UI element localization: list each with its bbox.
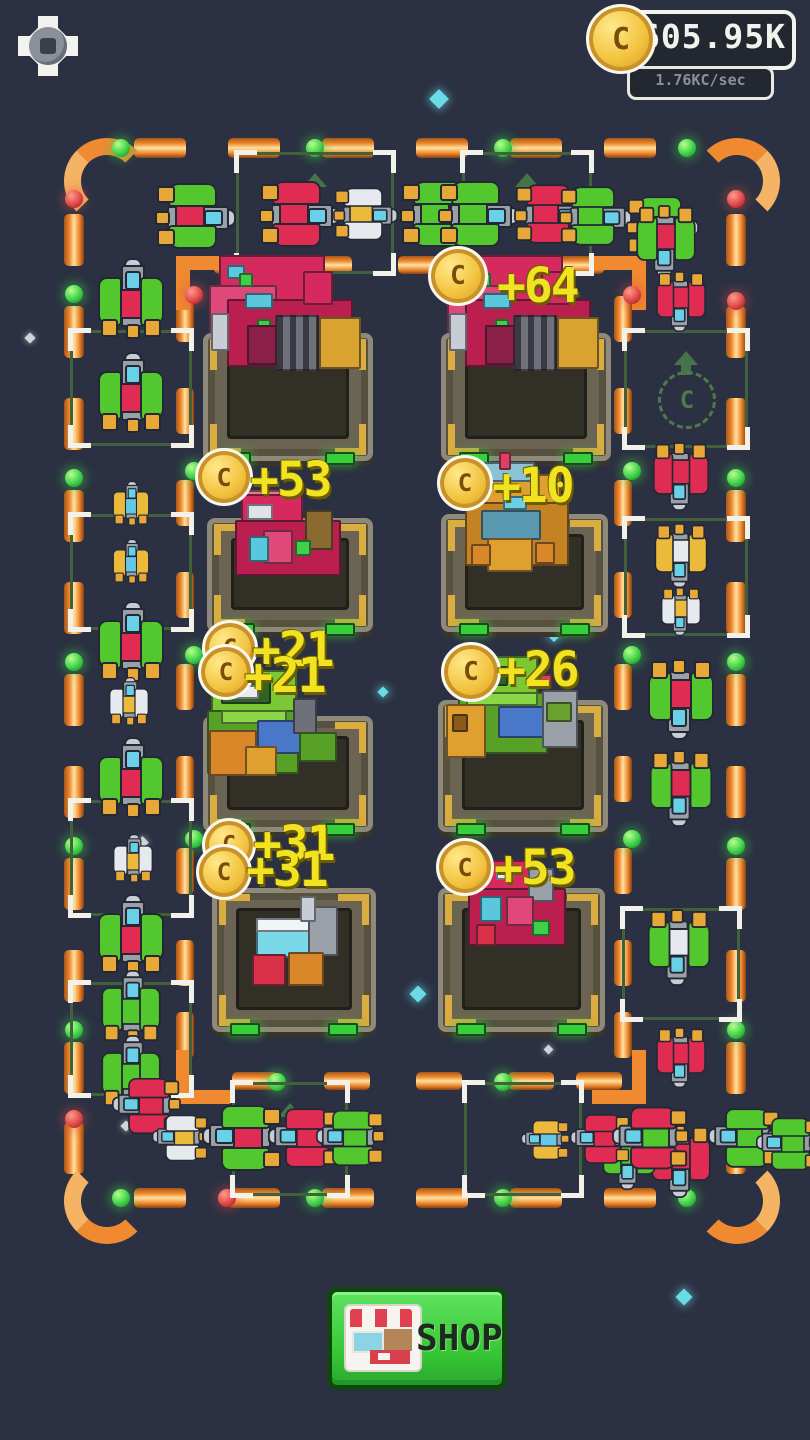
ship-cockpit: [672, 1169, 686, 1186]
platform-gold-corner: [335, 795, 366, 826]
slot-corner-bracket: [171, 609, 194, 632]
ship-fl: [558, 1148, 569, 1158]
ship-fr: [659, 273, 672, 287]
platform-gold-corner: [219, 995, 250, 1026]
collect-hint-icon: C: [658, 371, 716, 429]
factory-red_bottom[interactable]: [438, 888, 605, 1032]
factory-machine-block: [513, 315, 557, 371]
ship-green[interactable]: [650, 751, 713, 827]
ship-fr: [805, 1120, 810, 1134]
ship-green[interactable]: [648, 910, 711, 986]
factory-red_large[interactable]: [203, 333, 373, 461]
ship-cockpit: [487, 208, 506, 224]
platform-green-light: [328, 1023, 358, 1036]
coin-popup-value: +26: [497, 642, 578, 698]
slot-corner-bracket: [462, 1080, 485, 1103]
ship-white[interactable]: [109, 677, 149, 725]
track-corner: [64, 138, 150, 224]
slot-corner-bracket: [373, 150, 396, 173]
slot-corner-bracket: [622, 516, 645, 539]
ship-wr: [272, 223, 321, 247]
ship-fr: [261, 227, 279, 244]
ship-white[interactable]: [661, 588, 701, 636]
coin-popup-value: +53: [250, 452, 331, 508]
ship-tail: [658, 205, 671, 219]
track-dash: [64, 674, 84, 726]
track-light-green: [112, 1189, 130, 1207]
ship-cockpit: [672, 797, 687, 815]
factory-machine-block: [247, 325, 277, 365]
ship-fl: [693, 752, 709, 769]
ship-tail: [126, 717, 134, 726]
factory-machine-block: [319, 317, 361, 369]
track-dash-inner: [614, 664, 632, 710]
slot-corner-bracket: [68, 980, 91, 1003]
ship-fr: [561, 228, 577, 243]
track-corner: [694, 138, 780, 224]
platform-gold-corner: [338, 995, 369, 1026]
factory-machine-block: [452, 714, 468, 732]
ship-tail: [155, 211, 170, 225]
ship-green[interactable]: [156, 183, 236, 249]
ship-cockpit: [372, 209, 387, 222]
slot-corner-bracket: [327, 1080, 350, 1103]
ship-cockpit: [308, 208, 327, 224]
coin-icon: C: [196, 844, 252, 900]
ship-fl: [261, 184, 279, 201]
ship-wl: [571, 186, 615, 208]
ship-yellow[interactable]: [113, 539, 149, 583]
factory-machine-block: [471, 544, 491, 566]
ship-cockpit: [603, 211, 620, 225]
track-corner: [64, 1158, 150, 1244]
ship-cockpit: [280, 1129, 297, 1143]
track-light-green: [727, 469, 745, 487]
ship-fr: [651, 661, 668, 679]
ship-wl: [690, 672, 714, 721]
factory-machine-block: [295, 540, 311, 556]
track-dash-inner: [614, 848, 632, 894]
platform-gold-corner: [448, 424, 479, 455]
ship-wr: [451, 223, 500, 247]
ship-yellow[interactable]: [521, 1120, 569, 1160]
ship-cockpit: [161, 1131, 174, 1142]
platform-gold-corner: [335, 722, 366, 753]
ship-wl: [686, 595, 700, 624]
track-light-green: [678, 139, 696, 157]
ship-fr: [657, 525, 671, 539]
ship-tail: [676, 587, 684, 596]
ship-wr: [653, 453, 673, 495]
ship-fl: [805, 1154, 810, 1168]
coin-icon: C: [437, 455, 493, 511]
ship-yellow[interactable]: [113, 481, 149, 525]
background-star: [24, 332, 35, 343]
ship-wr: [648, 921, 671, 968]
factory-machine-block: [245, 293, 273, 309]
platform-gold-corner: [567, 995, 598, 1026]
factory-machine-block: [476, 924, 496, 946]
coin-symbol: C: [612, 22, 630, 57]
platform-gold-corner: [567, 894, 598, 925]
factory-machine-block: [239, 273, 253, 287]
factory-machine-block: [303, 271, 333, 305]
ship-cockpit: [125, 614, 141, 633]
ship-fr: [670, 1110, 687, 1126]
factory-machine-block: [487, 538, 533, 572]
ship-tail: [514, 210, 528, 223]
ship-cockpit: [580, 1132, 594, 1144]
factory-machine-block: [299, 732, 337, 762]
factory-machine-block: [249, 536, 269, 562]
ship-cockpit: [125, 271, 141, 290]
platform-green-light: [459, 623, 489, 636]
track-light-green: [727, 837, 745, 855]
ship-cockpit: [657, 249, 671, 266]
slot-corner-bracket: [561, 1080, 584, 1103]
track-light-green: [727, 653, 745, 671]
ship-tail: [259, 209, 274, 223]
ship-tail: [400, 209, 415, 223]
ship-green[interactable]: [756, 1118, 810, 1171]
ship-tail: [128, 517, 136, 525]
up-arrow-icon: [674, 351, 698, 365]
ship-white[interactable]: [113, 834, 153, 882]
track-light-green: [112, 139, 130, 157]
ship-green[interactable]: [98, 894, 164, 974]
background-star: [429, 89, 449, 109]
ship-tail: [168, 1098, 181, 1110]
ship-yellow[interactable]: [655, 524, 708, 588]
ship-wl: [688, 1037, 706, 1074]
slot-corner-bracket: [622, 328, 645, 351]
ship-tail: [673, 442, 685, 455]
coin-icon: C: [441, 642, 501, 702]
track-dash-inner: [614, 756, 632, 802]
slot-corner-bracket: [719, 906, 742, 929]
factory-machine-block: [245, 746, 277, 776]
ship-green[interactable]: [636, 206, 695, 278]
coin-popup-value: +64: [497, 258, 578, 314]
ship-green[interactable]: [98, 601, 164, 681]
coin-icon: C: [428, 246, 488, 306]
ship-tail: [561, 1135, 570, 1143]
ship-cockpit: [125, 750, 141, 769]
ship-fl: [157, 186, 175, 203]
factory-machine-block: [535, 542, 555, 564]
ship-cockpit: [215, 1128, 234, 1144]
track-dash: [604, 1188, 656, 1208]
ship-fl: [335, 190, 349, 204]
ship-green[interactable]: [648, 660, 714, 740]
ship-fr: [659, 1029, 672, 1043]
slot-corner-bracket: [171, 425, 194, 448]
factory-machine-block: [300, 896, 316, 922]
track-dash-inner: [416, 1072, 462, 1090]
platform-gold-corner: [335, 424, 366, 455]
ship-cockpit: [624, 1129, 642, 1144]
track-corner-inner: [592, 1050, 646, 1104]
platform-gold-corner: [448, 595, 479, 626]
factory-red_large[interactable]: [441, 333, 611, 461]
slot-corner-bracket: [230, 1175, 253, 1198]
ship-wr: [655, 534, 674, 573]
factory-machine-block: [481, 510, 541, 540]
slot-corner-bracket: [68, 609, 91, 632]
track-light-green: [65, 469, 83, 487]
ship-fl: [101, 319, 118, 337]
slot-corner-bracket: [68, 895, 91, 918]
ship-wl: [689, 453, 709, 495]
slot-corner-bracket: [622, 615, 645, 638]
slot-corner-bracket: [620, 906, 643, 929]
track-light-green: [65, 285, 83, 303]
factory-green_left[interactable]: [203, 716, 373, 832]
ship-tail: [126, 418, 140, 433]
ship-wr: [168, 225, 217, 249]
platform-gold-corner: [570, 595, 601, 626]
slot-corner-bracket: [327, 1175, 350, 1198]
storefront-icon: [344, 1304, 422, 1372]
ship-tail: [675, 1129, 689, 1142]
factory-machine-block: [288, 952, 324, 986]
ship-white[interactable]: [334, 188, 398, 241]
background-star: [544, 1045, 554, 1055]
ship-wl: [688, 281, 706, 318]
track-dash: [64, 214, 84, 266]
track-dash: [726, 858, 746, 910]
track-light-green: [727, 1021, 745, 1039]
ship-fl: [693, 1127, 708, 1143]
platform-green-light: [230, 1023, 260, 1036]
ship-wr: [571, 224, 615, 246]
slot-corner-bracket: [68, 512, 91, 535]
shop-button[interactable]: SHOP: [327, 1287, 507, 1390]
slot-corner-bracket: [230, 1080, 253, 1103]
factory-machine-block: [546, 702, 572, 722]
ship-fl: [111, 714, 121, 725]
ship-fl: [691, 911, 707, 928]
slot-corner-bracket: [727, 427, 750, 450]
slot-corner-bracket: [561, 1175, 584, 1198]
factory-machine-block: [252, 954, 286, 986]
ship-cockpit: [671, 708, 687, 727]
game-screen: 605.95K C 1.76KC/sec CC+64C+53C+10C+21C+…: [0, 0, 810, 1440]
ship-fl: [402, 184, 420, 201]
ship-green[interactable]: [439, 181, 519, 247]
slot-corner-bracket: [462, 1175, 485, 1198]
ship-cockpit: [674, 308, 686, 322]
ship-fr: [157, 229, 175, 246]
ship-tail: [674, 271, 685, 282]
slot-corner-bracket: [171, 512, 194, 535]
slot-corner-bracket: [68, 1075, 91, 1098]
factory-machine-block: [485, 325, 515, 365]
ship-tail: [559, 212, 573, 225]
coin-icon: C: [586, 4, 656, 74]
ship-tail: [130, 874, 138, 883]
ship-wr: [656, 281, 674, 318]
ship-fl: [115, 871, 125, 882]
ship-wr: [650, 762, 673, 809]
factory-green_right[interactable]: [438, 700, 608, 832]
ship-fr: [335, 224, 349, 238]
ship-fl: [101, 798, 118, 816]
ship-wl: [674, 217, 696, 261]
track-light-green: [65, 653, 83, 671]
ship-cockpit: [675, 617, 685, 628]
ship-green[interactable]: [98, 737, 164, 817]
ship-green[interactable]: [560, 186, 632, 245]
slot-corner-bracket: [719, 999, 742, 1022]
ship-wl: [451, 181, 500, 205]
ship-fr: [137, 714, 147, 725]
track-dash-inner: [176, 756, 194, 802]
ship-cockpit: [204, 210, 223, 226]
factory-machine-block: [532, 920, 550, 936]
ship-tail: [672, 659, 686, 674]
ship-wr: [636, 217, 658, 261]
ship-wr: [344, 221, 383, 240]
platform-gold-corner: [445, 795, 476, 826]
ship-fr: [141, 871, 151, 882]
factory-machine-block: [506, 896, 534, 926]
slot-corner-bracket: [622, 427, 645, 450]
ship-fr: [138, 573, 147, 583]
ship-fr: [144, 413, 161, 431]
platform-gold-corner: [573, 424, 604, 455]
ship-white[interactable]: [152, 1115, 208, 1161]
ship-cockpit: [720, 1129, 737, 1143]
ship-green[interactable]: [98, 258, 164, 338]
slot-corner-bracket: [68, 425, 91, 448]
track-dash: [416, 1188, 468, 1208]
ship-wl: [688, 921, 711, 968]
slot-corner-bracket: [620, 999, 643, 1022]
ship-fr: [558, 1122, 569, 1132]
ship-fr: [440, 227, 458, 244]
platform-gold-corner: [445, 995, 476, 1026]
ship-green[interactable]: [316, 1110, 384, 1166]
ship-cockpit: [674, 1064, 686, 1078]
slot-corner-bracket: [460, 150, 483, 173]
ship-fl: [561, 189, 577, 204]
storefront-wall: [384, 1329, 412, 1351]
coin-popup-value: +53: [494, 840, 575, 896]
factory-red_med[interactable]: [207, 518, 373, 632]
factory-machine-block: [480, 896, 502, 922]
ship-fr: [656, 444, 670, 459]
ship-fr: [516, 226, 532, 241]
factory-gold[interactable]: [441, 514, 608, 632]
ship-cockpit: [125, 907, 141, 926]
ship-cockpit: [123, 1098, 139, 1112]
ship-tail: [674, 1027, 685, 1038]
factory-machine-block: [211, 313, 229, 351]
ship-fr: [144, 798, 161, 816]
ship-red[interactable]: [656, 272, 706, 332]
ship-wr: [661, 595, 675, 624]
track-light-red: [185, 286, 203, 304]
slot-corner-bracket: [727, 328, 750, 351]
platform-green-light: [560, 623, 590, 636]
factory-machine-block: [275, 315, 319, 371]
slot-corner-bracket: [234, 150, 257, 173]
ship-wl: [690, 762, 713, 809]
slot-corner-bracket: [727, 516, 750, 539]
ship-cockpit: [529, 1134, 540, 1144]
ship-tail: [438, 209, 453, 223]
storefront-tag: [378, 1353, 390, 1360]
track-light-green: [623, 830, 641, 848]
ship-cockpit: [673, 484, 687, 500]
platform-green-light: [456, 823, 486, 836]
track-light-green: [623, 462, 641, 480]
coin-popup-value: +10: [492, 458, 573, 514]
ship-fl: [115, 573, 124, 583]
ship-fl: [691, 525, 705, 539]
ship-red[interactable]: [612, 1107, 688, 1170]
background-star: [676, 1289, 693, 1306]
track-dash: [726, 766, 746, 818]
coin-popup-value: +21: [244, 648, 325, 704]
factory-machine-block: [557, 317, 599, 369]
ship-wl: [344, 188, 383, 207]
ship-tail: [674, 523, 685, 535]
ship-green[interactable]: [98, 352, 164, 432]
ship-fl: [689, 589, 699, 600]
ship-fl: [691, 1029, 704, 1043]
ship-fl: [678, 207, 693, 223]
ship-fl: [694, 661, 711, 679]
ship-wr: [648, 672, 672, 721]
ship-red[interactable]: [656, 1028, 706, 1088]
ship-green[interactable]: [101, 970, 160, 1042]
ship-tail: [126, 803, 140, 818]
game-board: CC+64C+53C+10C+21C+21C+26C+31C+31C+53: [0, 0, 810, 1440]
platform-green-light: [560, 823, 590, 836]
factory-small_misc[interactable]: [212, 888, 376, 1032]
ship-tail: [372, 1130, 385, 1142]
slot-corner-bracket: [171, 328, 194, 351]
ship-fl: [692, 444, 706, 459]
background-star: [377, 686, 388, 697]
ship-wl: [168, 183, 217, 207]
background-star: [410, 986, 427, 1003]
ship-fr: [639, 207, 654, 223]
ship-tail: [672, 750, 685, 764]
ship-slot[interactable]: C: [624, 330, 748, 448]
ship-fl: [670, 1150, 687, 1166]
track-dash: [726, 1042, 746, 1094]
track-dash: [604, 138, 656, 158]
ship-cockpit: [125, 365, 141, 384]
track-light-red: [65, 1110, 83, 1128]
ship-cockpit: [670, 956, 685, 974]
platform-gold-corner: [335, 595, 366, 626]
storefront-awning: [350, 1309, 412, 1327]
ship-fr: [368, 1113, 383, 1127]
ship-red[interactable]: [653, 443, 709, 511]
ship-wl: [688, 534, 707, 573]
ship-fl: [516, 187, 532, 202]
platform-gold-corner: [570, 520, 601, 551]
slot-corner-bracket: [171, 798, 194, 821]
ship-red[interactable]: [260, 181, 340, 247]
coin-popup-value: +31: [246, 842, 327, 898]
ship-wl: [272, 181, 321, 205]
ship-tail: [333, 210, 345, 221]
